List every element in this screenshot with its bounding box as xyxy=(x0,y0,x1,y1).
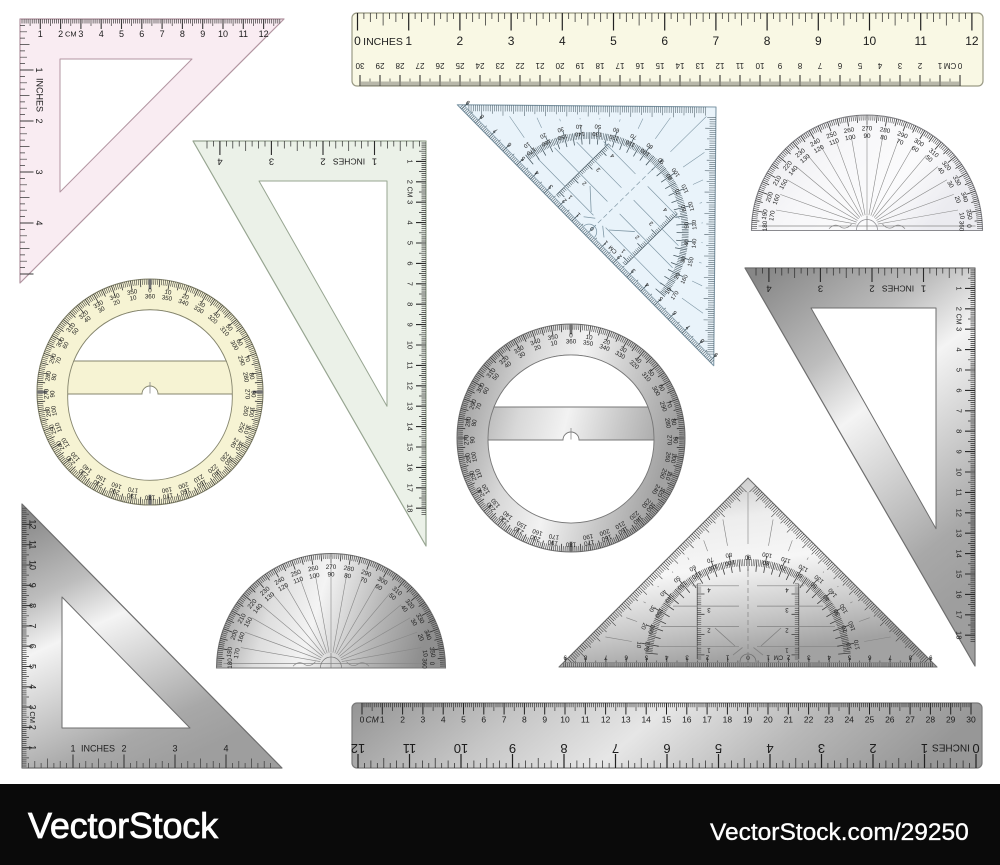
svg-text:10: 10 xyxy=(863,34,877,48)
svg-text:15: 15 xyxy=(655,61,664,70)
svg-text:2: 2 xyxy=(121,744,126,754)
svg-text:11: 11 xyxy=(735,61,744,70)
svg-text:0: 0 xyxy=(965,224,972,228)
svg-text:11: 11 xyxy=(581,715,590,725)
svg-text:7: 7 xyxy=(502,715,507,725)
svg-text:3: 3 xyxy=(421,715,426,725)
svg-text:4: 4 xyxy=(766,283,771,294)
svg-text:15: 15 xyxy=(406,443,415,451)
svg-text:19: 19 xyxy=(575,61,584,70)
svg-text:11: 11 xyxy=(28,540,38,549)
svg-text:12: 12 xyxy=(28,519,38,529)
svg-text:5: 5 xyxy=(610,34,617,48)
svg-text:6: 6 xyxy=(663,741,670,756)
svg-text:2: 2 xyxy=(320,156,325,167)
svg-text:1: 1 xyxy=(380,715,385,725)
svg-text:40: 40 xyxy=(576,122,583,128)
svg-text:9: 9 xyxy=(542,715,547,725)
svg-text:4: 4 xyxy=(223,744,228,754)
svg-text:24: 24 xyxy=(844,715,854,725)
svg-text:26: 26 xyxy=(435,61,444,70)
svg-text:CM: CM xyxy=(943,61,956,70)
svg-text:24: 24 xyxy=(475,61,484,70)
svg-text:9: 9 xyxy=(955,450,964,454)
svg-text:140: 140 xyxy=(692,238,699,248)
svg-text:12: 12 xyxy=(601,715,611,725)
svg-text:6: 6 xyxy=(955,388,964,392)
svg-text:21: 21 xyxy=(784,715,794,725)
svg-text:CM: CM xyxy=(365,715,379,725)
svg-text:2: 2 xyxy=(786,654,790,661)
svg-text:7: 7 xyxy=(817,61,822,70)
svg-text:14: 14 xyxy=(641,715,651,725)
svg-text:2: 2 xyxy=(34,118,44,123)
svg-text:13: 13 xyxy=(621,715,631,725)
svg-text:15: 15 xyxy=(662,715,672,725)
svg-text:10: 10 xyxy=(454,741,468,756)
svg-text:CM: CM xyxy=(28,711,37,723)
svg-text:0: 0 xyxy=(360,715,365,725)
svg-text:4: 4 xyxy=(766,741,773,756)
svg-text:4: 4 xyxy=(665,654,669,661)
svg-text:19: 19 xyxy=(743,715,753,725)
svg-text:2: 2 xyxy=(400,715,405,725)
svg-text:6: 6 xyxy=(406,261,415,265)
svg-text:8: 8 xyxy=(406,302,415,306)
svg-text:4: 4 xyxy=(34,220,44,225)
svg-text:INCHES: INCHES xyxy=(932,742,970,753)
svg-text:360: 360 xyxy=(145,294,156,301)
svg-text:11: 11 xyxy=(239,29,248,39)
svg-text:1: 1 xyxy=(725,654,729,661)
svg-text:20: 20 xyxy=(763,715,773,725)
svg-text:22: 22 xyxy=(804,715,814,725)
svg-text:12: 12 xyxy=(965,34,979,48)
svg-text:3: 3 xyxy=(78,29,83,39)
svg-text:5: 5 xyxy=(644,654,648,661)
svg-text:17: 17 xyxy=(406,484,415,492)
svg-text:INCHES: INCHES xyxy=(81,744,115,754)
svg-text:29: 29 xyxy=(375,61,384,70)
svg-text:VectorStock: VectorStock xyxy=(28,805,219,846)
svg-text:18: 18 xyxy=(723,715,733,725)
svg-text:7: 7 xyxy=(604,654,608,661)
svg-text:4: 4 xyxy=(877,61,882,70)
svg-text:INCHES: INCHES xyxy=(363,36,403,48)
svg-text:3: 3 xyxy=(508,34,515,48)
svg-text:8: 8 xyxy=(180,29,185,39)
svg-text:14: 14 xyxy=(955,549,964,557)
svg-text:3: 3 xyxy=(406,200,415,204)
svg-text:13: 13 xyxy=(955,529,964,537)
svg-text:1: 1 xyxy=(937,61,942,70)
svg-text:2: 2 xyxy=(457,34,464,48)
svg-text:8: 8 xyxy=(764,34,771,48)
svg-text:1: 1 xyxy=(955,286,964,290)
svg-text:10: 10 xyxy=(755,61,764,70)
svg-text:180: 180 xyxy=(227,658,234,669)
svg-text:2: 2 xyxy=(917,61,922,70)
svg-text:13: 13 xyxy=(406,402,415,410)
svg-text:3: 3 xyxy=(34,169,44,174)
svg-text:5: 5 xyxy=(955,368,964,372)
svg-text:5: 5 xyxy=(406,241,415,245)
svg-text:18: 18 xyxy=(955,631,964,639)
svg-text:11: 11 xyxy=(406,362,415,370)
svg-text:4: 4 xyxy=(28,684,38,689)
svg-text:3: 3 xyxy=(685,654,689,661)
svg-text:27: 27 xyxy=(415,61,424,70)
svg-text:2: 2 xyxy=(869,283,874,294)
svg-text:130: 130 xyxy=(592,130,602,137)
svg-text:3: 3 xyxy=(172,744,177,754)
svg-text:1: 1 xyxy=(28,745,38,750)
svg-text:16: 16 xyxy=(955,590,964,598)
svg-text:16: 16 xyxy=(635,61,644,70)
svg-text:1: 1 xyxy=(372,156,377,167)
svg-text:21: 21 xyxy=(535,61,544,70)
svg-text:25: 25 xyxy=(455,61,464,70)
svg-text:2: 2 xyxy=(406,180,415,184)
svg-text:9: 9 xyxy=(406,323,415,327)
svg-text:6: 6 xyxy=(868,654,872,661)
svg-text:8: 8 xyxy=(797,61,802,70)
svg-text:8: 8 xyxy=(955,429,964,433)
svg-text:8: 8 xyxy=(522,715,527,725)
svg-text:140: 140 xyxy=(575,130,585,137)
svg-text:270: 270 xyxy=(244,389,251,400)
svg-text:0: 0 xyxy=(354,34,361,48)
svg-text:1: 1 xyxy=(405,34,412,48)
svg-text:CM: CM xyxy=(955,314,962,325)
svg-text:8: 8 xyxy=(28,603,38,608)
svg-text:5: 5 xyxy=(857,61,862,70)
svg-text:20: 20 xyxy=(555,61,564,70)
svg-text:180: 180 xyxy=(762,220,769,231)
svg-text:3: 3 xyxy=(28,705,38,710)
svg-text:4: 4 xyxy=(406,221,415,225)
svg-text:8: 8 xyxy=(583,654,587,661)
svg-text:1: 1 xyxy=(38,29,43,39)
svg-text:7: 7 xyxy=(955,409,964,413)
svg-text:50: 50 xyxy=(594,122,601,129)
svg-text:12: 12 xyxy=(351,741,365,756)
svg-text:5: 5 xyxy=(461,715,466,725)
svg-text:30: 30 xyxy=(966,715,976,725)
svg-text:28: 28 xyxy=(395,61,404,70)
svg-text:360: 360 xyxy=(958,221,965,232)
svg-text:50: 50 xyxy=(684,222,690,229)
svg-text:360: 360 xyxy=(566,339,577,346)
svg-text:11: 11 xyxy=(955,489,964,497)
svg-text:6: 6 xyxy=(28,644,38,649)
svg-text:10: 10 xyxy=(28,560,38,570)
svg-text:16: 16 xyxy=(682,715,692,725)
svg-text:17: 17 xyxy=(955,611,964,619)
svg-text:5: 5 xyxy=(28,664,38,669)
svg-text:6: 6 xyxy=(624,654,628,661)
svg-text:17: 17 xyxy=(702,715,712,725)
svg-text:4: 4 xyxy=(217,156,222,167)
svg-text:0: 0 xyxy=(957,61,962,70)
svg-text:3: 3 xyxy=(897,61,902,70)
svg-text:2: 2 xyxy=(58,29,63,39)
svg-text:8: 8 xyxy=(908,654,912,661)
svg-text:4: 4 xyxy=(827,654,831,661)
svg-text:5: 5 xyxy=(847,654,851,661)
svg-text:15: 15 xyxy=(955,570,964,578)
svg-text:6: 6 xyxy=(661,34,668,48)
svg-text:8: 8 xyxy=(560,741,567,756)
svg-text:90: 90 xyxy=(470,436,477,443)
svg-text:0: 0 xyxy=(972,741,979,756)
svg-text:29: 29 xyxy=(946,715,956,725)
svg-text:7: 7 xyxy=(28,623,38,628)
svg-text:90: 90 xyxy=(50,390,57,397)
svg-text:25: 25 xyxy=(865,715,875,725)
svg-text:INCHES: INCHES xyxy=(35,78,45,112)
svg-text:12: 12 xyxy=(955,509,964,517)
svg-text:0: 0 xyxy=(428,662,435,666)
svg-text:9: 9 xyxy=(928,654,932,661)
svg-text:14: 14 xyxy=(406,422,415,430)
svg-text:7: 7 xyxy=(612,741,619,756)
svg-text:14: 14 xyxy=(675,61,684,70)
svg-text:17: 17 xyxy=(615,61,624,70)
svg-text:CM: CM xyxy=(774,654,783,660)
svg-text:1: 1 xyxy=(406,159,415,163)
svg-text:3: 3 xyxy=(955,327,964,331)
svg-text:5: 5 xyxy=(119,29,124,39)
svg-text:4: 4 xyxy=(99,29,104,39)
svg-text:6: 6 xyxy=(139,29,144,39)
svg-text:16: 16 xyxy=(406,463,415,471)
svg-text:6: 6 xyxy=(481,715,486,725)
svg-text:9: 9 xyxy=(509,741,516,756)
svg-text:30: 30 xyxy=(355,61,364,70)
svg-text:2: 2 xyxy=(869,741,876,756)
svg-text:7: 7 xyxy=(888,654,892,661)
svg-text:1: 1 xyxy=(34,67,44,72)
svg-text:90: 90 xyxy=(327,571,335,578)
svg-text:18: 18 xyxy=(595,61,604,70)
svg-text:CM: CM xyxy=(65,30,77,39)
svg-text:2: 2 xyxy=(28,725,38,730)
svg-text:7: 7 xyxy=(406,282,415,286)
svg-text:3: 3 xyxy=(807,654,811,661)
svg-text:9: 9 xyxy=(28,583,38,588)
svg-text:1: 1 xyxy=(766,654,770,661)
svg-text:23: 23 xyxy=(824,715,834,725)
svg-text:7: 7 xyxy=(713,34,720,48)
svg-text:VectorStock.com/29250: VectorStock.com/29250 xyxy=(710,819,969,846)
svg-text:CM: CM xyxy=(406,187,413,198)
svg-text:INCHES: INCHES xyxy=(333,157,365,167)
svg-text:9: 9 xyxy=(777,61,782,70)
svg-text:3: 3 xyxy=(818,283,823,294)
svg-text:2: 2 xyxy=(955,307,964,311)
svg-text:90: 90 xyxy=(863,133,871,140)
svg-text:40: 40 xyxy=(684,239,691,246)
svg-text:9: 9 xyxy=(200,29,205,39)
svg-text:180: 180 xyxy=(565,540,576,547)
svg-text:22: 22 xyxy=(515,61,524,70)
svg-text:270: 270 xyxy=(665,435,672,446)
svg-text:26: 26 xyxy=(885,715,895,725)
svg-text:180: 180 xyxy=(144,494,155,501)
svg-text:90: 90 xyxy=(744,554,751,560)
svg-text:7: 7 xyxy=(160,29,165,39)
svg-text:2: 2 xyxy=(705,654,709,661)
svg-text:12: 12 xyxy=(715,61,724,70)
svg-text:18: 18 xyxy=(406,504,415,512)
svg-text:270: 270 xyxy=(862,126,873,133)
svg-text:13: 13 xyxy=(695,61,704,70)
svg-text:11: 11 xyxy=(914,34,927,48)
svg-text:28: 28 xyxy=(926,715,936,725)
svg-text:11: 11 xyxy=(403,741,417,756)
svg-text:1: 1 xyxy=(70,744,75,754)
svg-text:27: 27 xyxy=(905,715,915,725)
svg-text:10: 10 xyxy=(218,29,228,39)
svg-text:4: 4 xyxy=(441,715,446,725)
svg-text:130: 130 xyxy=(692,220,699,230)
svg-text:12: 12 xyxy=(406,382,415,390)
svg-text:5: 5 xyxy=(715,741,722,756)
svg-text:10: 10 xyxy=(406,341,415,349)
svg-text:3: 3 xyxy=(269,156,274,167)
svg-text:360: 360 xyxy=(421,658,428,669)
svg-text:INCHES: INCHES xyxy=(882,284,914,294)
svg-text:12: 12 xyxy=(259,29,269,39)
svg-text:9: 9 xyxy=(563,654,567,661)
svg-text:23: 23 xyxy=(495,61,504,70)
svg-text:270: 270 xyxy=(326,564,337,571)
svg-text:4: 4 xyxy=(559,34,566,48)
svg-text:6: 6 xyxy=(837,61,842,70)
svg-text:10: 10 xyxy=(955,468,964,476)
svg-text:1: 1 xyxy=(921,283,926,294)
svg-text:10: 10 xyxy=(560,715,570,725)
svg-text:3: 3 xyxy=(818,741,825,756)
svg-text:9: 9 xyxy=(815,34,822,48)
svg-text:1: 1 xyxy=(921,741,928,756)
svg-text:4: 4 xyxy=(955,348,964,352)
